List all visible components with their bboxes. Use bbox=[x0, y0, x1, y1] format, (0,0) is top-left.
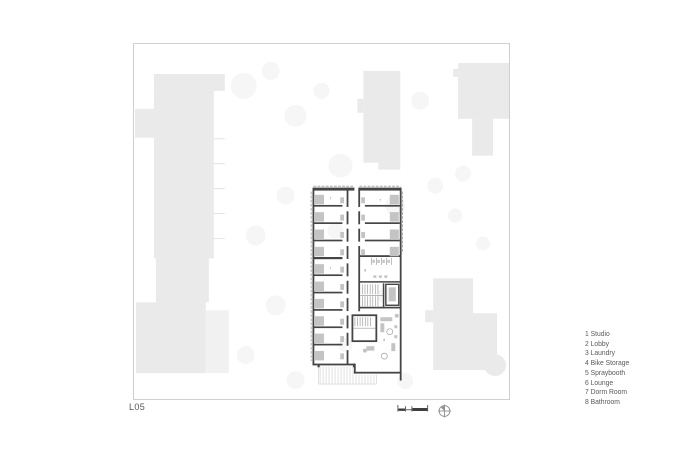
terrace-hatch bbox=[318, 365, 377, 384]
lower-stair-core bbox=[352, 315, 376, 341]
drawing-sheet: 7 7 7 8 6 L05 1 Studio 2 Lobby 3 Laundry… bbox=[0, 0, 700, 453]
site-plan-frame: 7 7 7 8 6 bbox=[133, 43, 510, 400]
legend-item: 5 Spraybooth bbox=[585, 368, 629, 378]
legend-item: 8 Bathroom bbox=[585, 397, 629, 407]
context-building-east bbox=[425, 278, 506, 376]
legend-item: 3 Laundry bbox=[585, 348, 629, 358]
legend-item: 7 Dorm Room bbox=[585, 387, 629, 397]
legend-item: 1 Studio bbox=[585, 329, 629, 339]
svg-text:6: 6 bbox=[383, 338, 385, 342]
north-arrow-icon bbox=[436, 403, 453, 420]
svg-text:7: 7 bbox=[329, 266, 331, 270]
context-building-north bbox=[357, 71, 400, 170]
legend: 1 Studio 2 Lobby 3 Laundry 4 Bike Storag… bbox=[585, 329, 632, 407]
floor-plan: 7 7 7 8 6 bbox=[311, 186, 402, 384]
legend-item: 4 Bike Storage bbox=[585, 358, 629, 368]
balcony-lines bbox=[214, 139, 225, 239]
svg-text:7: 7 bbox=[329, 197, 331, 201]
sheet-number-label: L05 bbox=[129, 402, 145, 413]
room-partitions bbox=[314, 205, 400, 346]
legend-item: 6 Lounge bbox=[585, 378, 629, 388]
svg-text:7: 7 bbox=[379, 199, 381, 203]
legend-item: 2 Lobby bbox=[585, 339, 629, 349]
svg-text:8: 8 bbox=[364, 268, 366, 272]
scale-bar bbox=[397, 403, 433, 417]
corridor-walls bbox=[346, 188, 360, 366]
lounge-furniture bbox=[363, 314, 399, 359]
map-marks bbox=[397, 403, 457, 421]
context-building-northeast bbox=[453, 63, 509, 156]
site-plan: 7 7 7 8 6 bbox=[134, 44, 509, 399]
context-building-west-annex bbox=[206, 310, 229, 373]
